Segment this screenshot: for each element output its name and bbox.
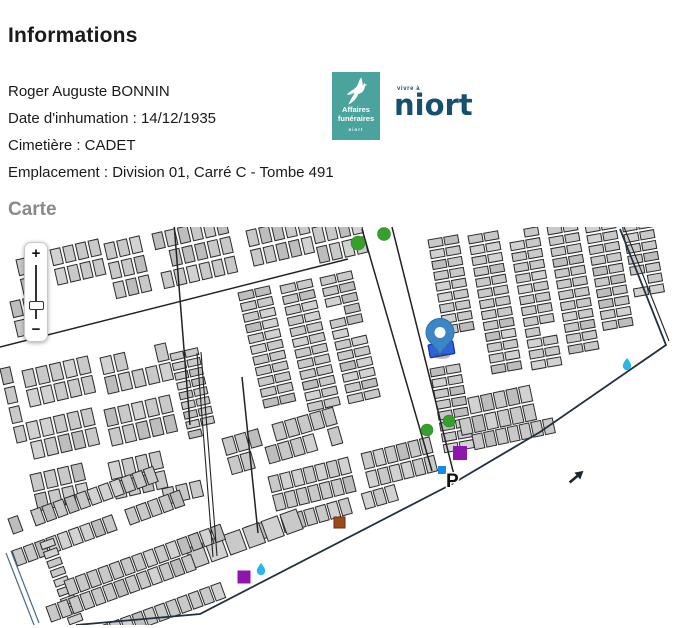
burial-plot[interactable] [114,352,129,371]
burial-plot[interactable] [329,242,342,260]
burial-plot[interactable] [474,266,489,276]
burial-plot[interactable] [491,364,506,374]
burial-plot[interactable] [543,335,558,345]
burial-plot[interactable] [161,271,174,289]
burial-plot[interactable] [479,299,494,309]
burial-plot[interactable] [470,244,485,254]
burial-plot[interactable] [26,421,41,440]
zoom-in-button[interactable]: + [32,245,41,263]
burial-plot[interactable] [269,350,285,361]
burial-plot[interactable] [196,396,210,406]
zoom-out-button[interactable]: − [32,321,41,339]
burial-plot[interactable] [361,378,377,389]
burial-plot[interactable] [194,242,207,260]
burial-plot[interactable] [257,297,273,308]
burial-plot[interactable] [58,434,73,453]
burial-plot[interactable] [562,311,577,321]
burial-plot[interactable] [645,262,660,272]
burial-plot[interactable] [518,284,533,294]
burial-plot[interactable] [40,417,55,436]
burial-plot[interactable] [412,458,426,476]
burial-plot[interactable] [118,404,133,423]
burial-plot[interactable] [434,388,449,398]
burial-plot[interactable] [253,354,269,365]
burial-plot[interactable] [526,238,541,248]
burial-plot[interactable] [570,265,585,275]
burial-plot[interactable] [30,473,45,492]
burial-plot[interactable] [596,288,611,298]
burial-plot[interactable] [189,367,203,377]
burial-plot[interactable] [113,281,126,299]
burial-plot[interactable] [134,255,147,273]
burial-plot[interactable] [331,479,345,497]
burial-plot[interactable] [287,315,303,326]
burial-plot[interactable] [268,475,282,493]
burial-plot[interactable] [438,292,453,302]
burial-plot[interactable] [525,327,540,337]
burial-plot[interactable] [576,298,591,308]
burial-plot[interactable] [118,372,133,391]
burial-plot[interactable] [612,285,627,295]
burial-plot[interactable] [448,375,463,385]
burial-plot[interactable] [497,409,511,427]
burial-plot[interactable] [364,389,380,400]
burial-plot[interactable] [455,300,470,310]
burial-plot[interactable] [434,270,449,280]
burial-plot[interactable] [338,498,352,516]
burial-plot[interactable] [284,490,298,508]
burial-plot[interactable] [344,303,360,314]
burial-plot[interactable] [578,308,593,318]
burial-plot[interactable] [503,339,518,349]
burial-plot[interactable] [174,268,187,286]
burial-plot[interactable] [152,232,165,250]
burial-plot[interactable] [238,290,254,301]
burial-plot[interactable] [186,265,199,283]
burial-plot[interactable] [354,346,370,357]
burial-plot[interactable] [432,377,447,387]
burial-plot[interactable] [319,481,333,499]
burial-plot[interactable] [259,227,272,244]
burial-plot[interactable] [446,246,461,256]
burial-plot[interactable] [476,277,491,287]
burial-plot[interactable] [75,242,88,260]
burial-plot[interactable] [108,427,123,446]
burial-plot[interactable] [260,307,276,318]
burial-plot[interactable] [297,227,310,235]
burial-plot[interactable] [377,467,391,485]
burial-plot[interactable] [312,227,325,244]
burial-plot[interactable] [566,333,581,343]
burial-plot[interactable] [186,419,200,429]
burial-plot[interactable] [528,248,543,258]
burial-plot[interactable] [309,332,325,343]
burial-plot[interactable] [131,401,146,420]
burial-plot[interactable] [71,431,86,450]
burial-plot[interactable] [145,366,160,385]
burial-plot[interactable] [13,425,26,443]
burial-plot[interactable] [436,399,451,409]
burial-plot[interactable] [100,356,115,375]
burial-plot[interactable] [568,254,583,264]
burial-plot[interactable] [273,493,287,511]
burial-plot[interactable] [71,463,86,482]
burial-plot[interactable] [77,356,92,375]
burial-plot[interactable] [263,397,279,408]
burial-plot[interactable] [295,347,311,358]
burial-plot[interactable] [523,316,538,326]
burial-plot[interactable] [57,466,72,485]
burial-plot[interactable] [529,349,544,359]
burial-plot[interactable] [302,300,318,311]
burial-plot[interactable] [373,448,387,466]
burial-plot[interactable] [67,411,82,430]
burial-plot[interactable] [446,364,461,374]
burial-plot[interactable] [246,229,259,247]
burial-plot[interactable] [305,390,321,401]
burial-plot[interactable] [10,300,23,318]
burial-plot[interactable] [314,354,330,365]
burial-plot[interactable] [350,227,363,235]
burial-plot[interactable] [4,386,17,404]
burial-plot[interactable] [587,233,602,243]
burial-plot[interactable] [506,388,520,406]
burial-plot[interactable] [555,268,570,278]
burial-plot[interactable] [315,504,329,522]
burial-plot[interactable] [529,259,544,269]
burial-plot[interactable] [408,440,422,458]
burial-plot[interactable] [603,231,618,241]
burial-plot[interactable] [250,343,266,354]
burial-plot[interactable] [240,300,256,311]
burial-plot[interactable] [187,357,201,367]
burial-plot[interactable] [248,332,264,343]
burial-plot[interactable] [384,485,398,503]
burial-plot[interactable] [356,357,372,368]
burial-plot[interactable] [325,296,341,307]
burial-plot[interactable] [486,242,501,252]
burial-plot[interactable] [489,263,504,273]
burial-plot[interactable] [322,285,338,296]
burial-plot[interactable] [493,285,508,295]
burial-plot[interactable] [533,281,548,291]
burial-plot[interactable] [316,365,332,376]
burial-plot[interactable] [516,273,531,283]
burial-plot[interactable] [537,303,552,313]
zoom-slider-handle[interactable] [29,301,44,310]
burial-plot[interactable] [250,248,263,266]
burial-plot[interactable] [444,235,459,245]
burial-plot[interactable] [136,421,151,440]
burial-plot[interactable] [347,393,363,404]
burial-plot[interactable] [243,311,259,322]
burial-plot[interactable] [307,401,323,412]
burial-plot[interactable] [104,408,119,427]
burial-plot[interactable] [182,245,195,263]
burial-plot[interactable] [63,359,78,378]
burial-plot[interactable] [487,342,502,352]
burial-plot[interactable] [183,410,197,420]
burial-plot[interactable] [600,309,615,319]
burial-plot[interactable] [524,227,539,237]
burial-plot[interactable] [199,262,212,280]
burial-plot[interactable] [448,256,463,266]
burial-plot[interactable] [258,375,274,386]
burial-plot[interactable] [468,396,482,414]
cemetery-map[interactable]: P [0,227,675,625]
burial-plot[interactable] [563,227,578,232]
burial-plot[interactable] [301,237,314,255]
burial-plot[interactable] [584,341,599,351]
burial-plot[interactable] [430,367,445,377]
burial-plot[interactable] [560,300,575,310]
burial-plot[interactable] [332,328,348,339]
burial-plot[interactable] [539,313,554,323]
burial-plot[interactable] [616,306,631,316]
burial-plot[interactable] [304,311,320,322]
burial-plot[interactable] [489,353,504,363]
burial-plot[interactable] [521,305,536,315]
burial-plot[interactable] [495,428,508,445]
burial-plot[interactable] [478,288,493,298]
burial-plot[interactable] [514,262,529,272]
burial-plot[interactable] [453,407,468,417]
burial-plot[interactable] [580,319,595,329]
burial-plot[interactable] [276,242,289,260]
burial-plot[interactable] [527,338,542,348]
burial-plot[interactable] [647,273,662,283]
burial-plot[interactable] [8,516,23,534]
burial-plot[interactable] [572,276,587,286]
burial-plot[interactable] [104,375,119,394]
burial-plot[interactable] [26,388,41,407]
burial-plot[interactable] [63,245,76,263]
burial-plot[interactable] [585,227,600,233]
burial-plot[interactable] [535,292,550,302]
burial-plot[interactable] [170,351,184,361]
burial-plot[interactable] [9,406,22,424]
burial-plot[interactable] [267,339,283,350]
burial-plot[interactable] [300,368,316,379]
burial-plot[interactable] [302,379,318,390]
burial-plot[interactable] [260,386,276,397]
burial-plot[interactable] [36,365,51,384]
burial-plot[interactable] [81,408,96,427]
burial-plot[interactable] [306,322,322,333]
burial-plot[interactable] [321,386,337,397]
burial-plot[interactable] [545,346,560,356]
burial-plot[interactable] [567,243,582,253]
burial-plot[interactable] [290,325,306,336]
burial-plot[interactable] [338,457,352,475]
burial-plot[interactable] [288,239,301,257]
burial-plot[interactable] [361,451,375,469]
burial-plot[interactable] [320,275,336,286]
burial-plot[interactable] [549,235,564,245]
burial-plot[interactable] [255,286,271,297]
burial-plot[interactable] [49,362,64,381]
burial-plot[interactable] [47,557,63,568]
burial-plot[interactable] [280,472,294,490]
burial-plot[interactable] [190,227,203,241]
burial-plot[interactable] [138,275,151,293]
burial-plot[interactable] [337,350,353,361]
burial-plot[interactable] [564,322,579,332]
burial-plot[interactable] [53,414,68,433]
burial-plot[interactable] [304,508,318,526]
burial-plot[interactable] [280,283,296,294]
burial-plot[interactable] [557,279,572,289]
burial-plot[interactable] [551,246,566,256]
burial-plot[interactable] [396,443,410,461]
burial-plot[interactable] [638,227,653,229]
burial-plot[interactable] [335,339,351,350]
burial-plot[interactable] [510,240,525,250]
burial-plot[interactable] [499,317,514,327]
burial-plot[interactable] [601,227,616,230]
burial-plot[interactable] [568,344,583,354]
burial-plot[interactable] [285,304,301,315]
burial-plot[interactable] [649,284,664,294]
burial-plot[interactable] [547,227,562,235]
burial-plot[interactable] [212,259,225,277]
burial-plot[interactable] [279,393,295,404]
burial-plot[interactable] [488,252,503,262]
burial-plot[interactable] [145,398,160,417]
burial-plot[interactable] [303,466,317,484]
burial-plot[interactable] [605,241,620,251]
burial-plot[interactable] [472,415,486,433]
burial-plot[interactable] [30,440,45,459]
burial-plot[interactable] [316,245,329,263]
burial-plot[interactable] [44,469,59,488]
burial-plot[interactable] [262,318,278,329]
burial-plot[interactable] [497,307,512,317]
burial-plot[interactable] [432,259,447,269]
burial-plot[interactable] [450,385,465,395]
burial-plot[interactable] [483,320,498,330]
burial-plot[interactable] [642,240,657,250]
burial-plot[interactable] [324,397,340,408]
burial-plot[interactable] [327,427,342,446]
burial-plot[interactable] [271,227,284,241]
burial-plot[interactable] [177,227,190,244]
burial-plot[interactable] [319,375,335,386]
burial-plot[interactable] [523,404,537,422]
burial-plot[interactable] [495,296,510,306]
burial-plot[interactable] [159,362,174,381]
burial-plot[interactable] [85,427,100,446]
burial-plot[interactable] [342,476,356,494]
burial-plot[interactable] [22,369,37,388]
burial-plot[interactable] [54,267,67,285]
burial-plot[interactable] [457,311,472,321]
burial-plot[interactable] [337,271,353,282]
burial-plot[interactable] [451,396,466,406]
burial-plot[interactable] [602,320,617,330]
burial-plot[interactable] [574,287,589,297]
burial-plot[interactable] [308,484,322,502]
burial-plot[interactable] [155,343,170,362]
burial-plot[interactable] [340,360,356,371]
burial-plot[interactable] [297,358,313,369]
burial-plot[interactable] [0,367,13,385]
burial-plot[interactable] [582,330,597,340]
burial-plot[interactable] [277,382,293,393]
burial-plot[interactable] [519,295,534,305]
burial-plot[interactable] [346,314,362,325]
burial-plot[interactable] [296,487,310,505]
burial-plot[interactable] [484,430,497,447]
burial-plot[interactable] [50,566,66,577]
burial-plot[interactable] [595,277,610,287]
burial-plot[interactable] [430,248,445,258]
burial-plot[interactable] [558,290,573,300]
burial-plot[interactable] [366,470,380,488]
burial-plot[interactable] [351,335,367,346]
burial-plot[interactable] [255,365,271,376]
burial-plot[interactable] [439,303,454,313]
burial-plot[interactable] [598,298,613,308]
burial-plot[interactable] [264,329,280,340]
burial-plot[interactable] [274,372,290,383]
burial-plot[interactable] [507,425,520,442]
burial-plot[interactable] [510,406,524,424]
burial-plot[interactable] [220,237,233,255]
burial-plot[interactable] [149,418,164,437]
burial-plot[interactable] [203,227,216,238]
burial-plot[interactable] [547,357,562,367]
burial-plot[interactable] [108,461,123,480]
burial-plot[interactable] [122,424,137,443]
burial-plot[interactable] [326,460,340,478]
burial-plot[interactable] [129,236,142,254]
burial-plot[interactable] [92,258,105,276]
burial-plot[interactable] [121,258,134,276]
burial-plot[interactable] [485,331,500,341]
burial-plot[interactable] [608,263,623,273]
burial-plot[interactable] [337,227,350,238]
burial-plot[interactable] [67,379,82,398]
burial-plot[interactable] [80,261,93,279]
burial-plot[interactable] [342,292,358,303]
burial-plot[interactable] [614,296,629,306]
burial-plot[interactable] [519,385,533,403]
burial-plot[interactable] [292,336,308,347]
burial-plot[interactable] [311,343,327,354]
burial-plot[interactable] [451,278,466,288]
burial-plot[interactable] [88,239,101,257]
burial-plot[interactable] [491,274,506,284]
burial-plot[interactable] [401,461,415,479]
burial-plot[interactable] [207,240,220,258]
burial-plot[interactable] [484,231,499,241]
burial-plot[interactable] [459,321,474,331]
burial-plot[interactable] [643,251,658,261]
burial-plot[interactable] [117,239,130,257]
burial-plot[interactable] [330,317,346,328]
burial-plot[interactable] [531,360,546,370]
burial-plot[interactable] [163,414,178,433]
burial-plot[interactable] [179,390,193,400]
burial-plot[interactable] [263,245,276,263]
burial-plot[interactable] [472,255,487,265]
burial-plot[interactable] [501,328,516,338]
burial-plot[interactable] [50,248,63,266]
burial-plot[interactable] [342,371,358,382]
burial-plot[interactable] [531,270,546,280]
burial-plot[interactable] [325,227,338,241]
